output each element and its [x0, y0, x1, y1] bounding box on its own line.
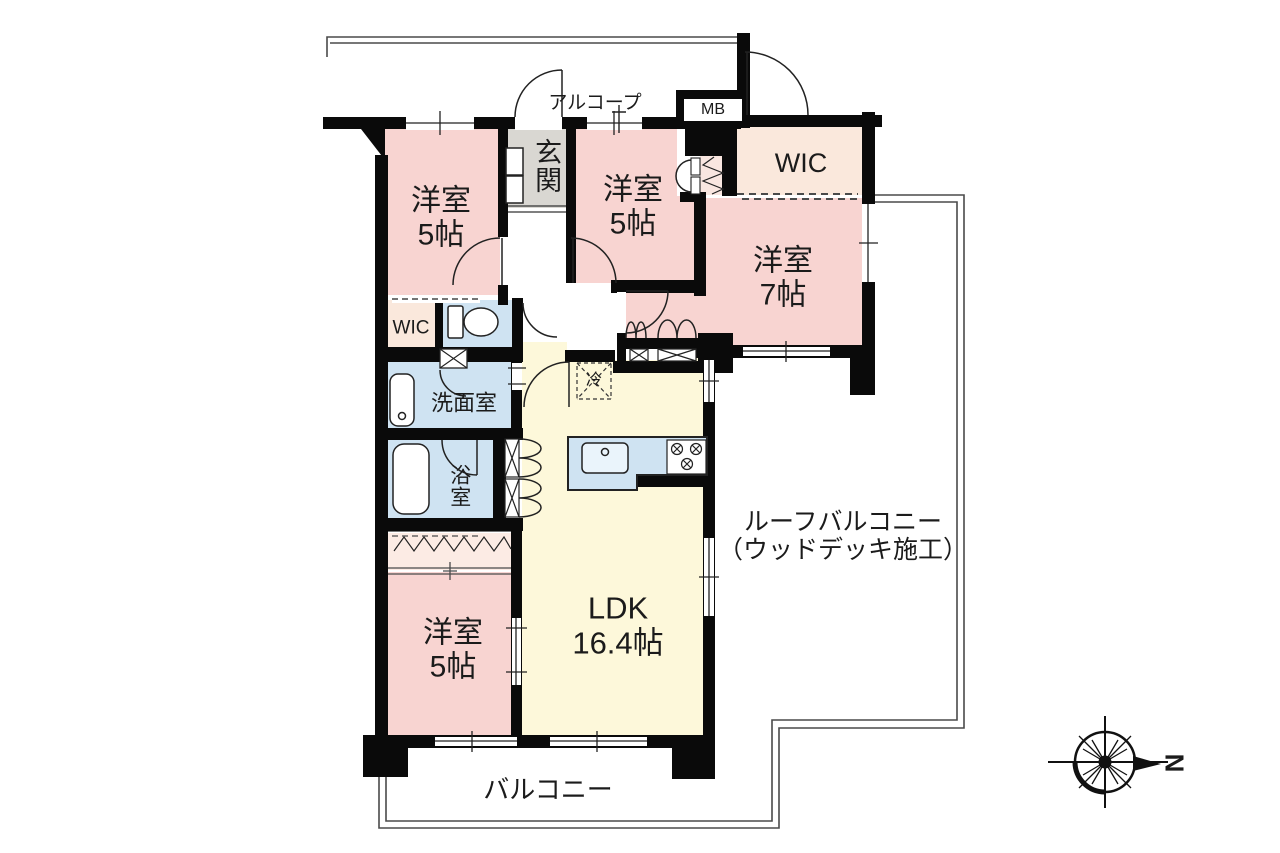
compass-north-arrow	[1133, 756, 1161, 771]
wall-bath-right	[493, 432, 506, 524]
wic-small-label: WIC	[393, 317, 430, 338]
ldk-storage-closets	[505, 439, 519, 517]
washbasin	[390, 374, 414, 426]
entrance-door-gap	[515, 116, 562, 130]
wall-left	[375, 155, 388, 745]
shoe-cabinet-2	[506, 176, 523, 203]
corridor-door-arc	[745, 52, 808, 115]
roof-balcony-label: ルーフバルコニー （ウッドデッキ施工）	[718, 508, 968, 564]
roof-balcony-line1: ルーフバルコニー	[718, 508, 968, 536]
bedroom-a-label: 洋室 5帖	[411, 184, 471, 251]
bedroom-c-name: 洋室	[753, 244, 813, 278]
kitchen-sink	[582, 443, 628, 473]
kitchen-stove	[667, 440, 706, 474]
bedroom-b-closet-panel-1	[691, 158, 700, 175]
wall-wc-divider	[435, 300, 443, 350]
bedroom-d-label: 洋室 5帖	[423, 616, 483, 683]
washroom-label: 洗面室	[431, 392, 497, 417]
floor-plan-graphics	[0, 0, 1280, 853]
wall-toilet-right	[512, 298, 523, 350]
meter-box-label: MB	[701, 101, 725, 119]
wall-hall-ldk	[565, 350, 615, 362]
wic-large-label: WIC	[775, 148, 827, 178]
toilet-tank	[448, 306, 463, 338]
hall-lobby-door-arc	[523, 303, 557, 337]
wall-right-upper	[862, 112, 875, 204]
wall-corridor-right	[737, 33, 750, 97]
entrance-label: 玄関	[531, 138, 561, 194]
bedroom-c-label: 洋室 7帖	[753, 244, 813, 311]
compass	[1048, 716, 1168, 808]
wall-bedroom-b-left	[566, 117, 576, 283]
wall-hall-closet-bottom	[613, 361, 698, 373]
wall-corner-block	[698, 333, 733, 373]
ldk-floor	[522, 342, 703, 740]
wall-corner-pillar	[850, 345, 875, 395]
wall-divider-bc	[694, 196, 706, 296]
compass-north-label: N	[1159, 754, 1188, 773]
bedroom-a-size: 5帖	[411, 218, 471, 252]
wall-closet-bar	[621, 338, 698, 349]
washing-machine-pan	[440, 349, 467, 368]
alcove-label: アルコープ	[548, 92, 641, 113]
toilet-bowl	[464, 308, 498, 336]
bedroom-d-name: 洋室	[423, 616, 483, 650]
compass-hub	[1099, 756, 1112, 769]
bedroom-b-label: 洋室 5帖	[603, 173, 663, 240]
corridor-line-outer	[327, 37, 737, 57]
wall-entrance-left-lower	[498, 285, 508, 305]
bedroom-b-name: 洋室	[603, 173, 663, 207]
roof-balcony-line2: （ウッドデッキ施工）	[718, 536, 968, 564]
hall-storage-closets	[630, 349, 696, 361]
bedroom-b-size: 5帖	[603, 207, 663, 241]
bathroom-label: 浴室	[447, 464, 471, 508]
bedroom-b-closet-bifold	[676, 160, 692, 192]
ldk-name: LDK	[572, 591, 663, 626]
wall-top-left-chamfer	[323, 117, 385, 160]
opening-washroom-door	[512, 363, 522, 390]
floor-plan: アルコープ MB 玄関 洋室 5帖 洋室 5帖 洋室 7帖 洋室 5帖 LDK …	[0, 0, 1280, 853]
bedroom-c-size: 7帖	[753, 278, 813, 312]
ldk-size: 16.4帖	[572, 626, 663, 661]
bedroom-a-name: 洋室	[411, 184, 471, 218]
wall-bath-bottom	[375, 518, 523, 531]
bedroom-c-door-gap	[617, 292, 626, 333]
refrigerator-label: 冷	[586, 372, 602, 390]
bedroom-b-closet-panel-2	[691, 177, 700, 194]
balcony-label: バルコニー	[483, 775, 612, 804]
bathtub	[393, 444, 429, 514]
wall-top-right	[735, 115, 882, 127]
ldk-label: LDK 16.4帖	[572, 591, 663, 660]
shoe-cabinet-1	[506, 148, 523, 175]
pillar-bottom-left	[363, 735, 408, 777]
bedroom-d-size: 5帖	[423, 650, 483, 684]
bedroom-c-ext-floor	[626, 292, 703, 340]
